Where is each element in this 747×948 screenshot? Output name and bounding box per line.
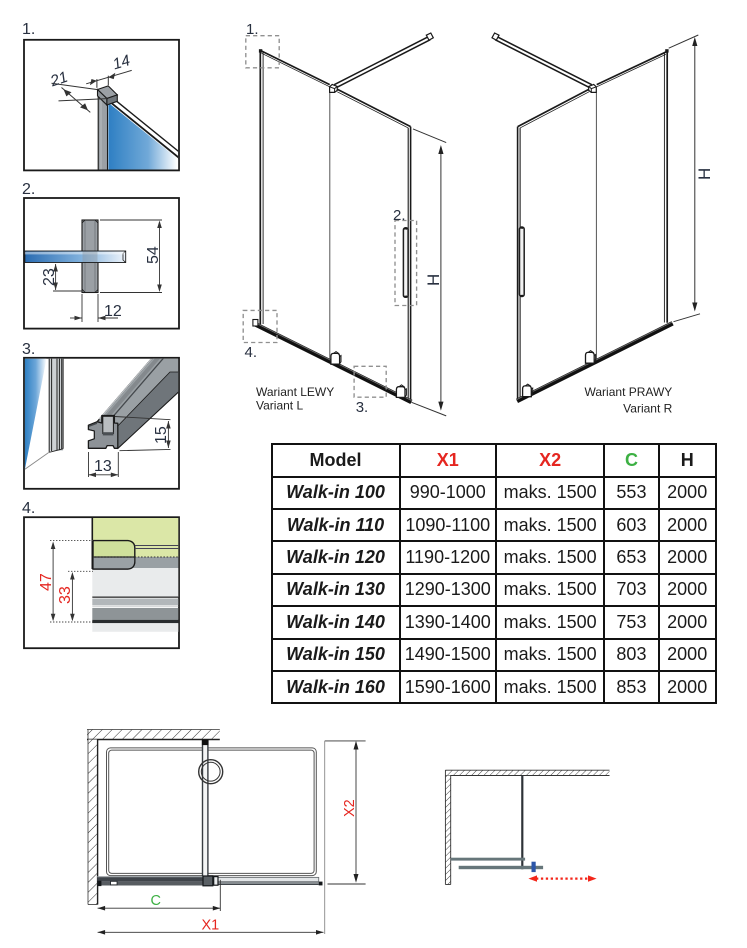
svg-text:13: 13	[94, 458, 112, 475]
svg-text:47: 47	[38, 573, 55, 591]
svg-text:12: 12	[104, 303, 122, 320]
svg-text:2.: 2.	[22, 181, 35, 198]
svg-text:1.: 1.	[22, 21, 35, 38]
svg-text:X1: X1	[202, 918, 220, 934]
svg-text:33: 33	[57, 586, 74, 604]
svg-text:H: H	[424, 274, 443, 286]
svg-text:Wariant PRAWY: Wariant PRAWY	[585, 385, 673, 399]
svg-text:2.: 2.	[393, 207, 406, 224]
svg-text:X2: X2	[342, 799, 358, 817]
svg-text:Variant L: Variant L	[256, 399, 303, 413]
svg-text:15: 15	[153, 426, 170, 444]
svg-text:4.: 4.	[22, 500, 35, 517]
svg-text:3.: 3.	[22, 341, 35, 358]
svg-text:H: H	[695, 168, 714, 180]
svg-text:3.: 3.	[356, 399, 369, 416]
svg-text:1.: 1.	[246, 21, 259, 38]
svg-text:Variant R: Variant R	[623, 401, 672, 415]
svg-text:C: C	[151, 893, 161, 909]
svg-text:Wariant LEWY: Wariant LEWY	[256, 385, 334, 399]
svg-text:4.: 4.	[245, 344, 258, 361]
svg-text:23: 23	[41, 268, 58, 286]
svg-text:54: 54	[145, 246, 162, 264]
